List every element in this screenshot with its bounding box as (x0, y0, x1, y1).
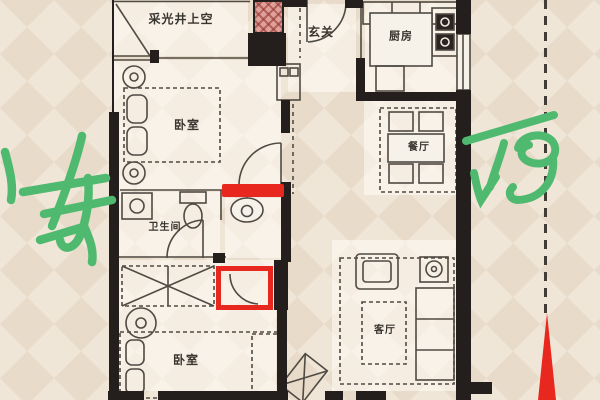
armchair-cushion (363, 261, 391, 282)
dining-chair (419, 164, 443, 183)
room-label-dining: 餐厅 (408, 143, 430, 153)
sofa (416, 288, 454, 380)
floor-plan-image: 采光井上空 玄关 厨房 卧室 餐厅 卫生间 卧室 客厅 (0, 0, 600, 400)
bed (124, 88, 220, 162)
red-pointer-spike (538, 313, 556, 400)
round-table (126, 308, 156, 338)
round-table (136, 318, 146, 328)
entry-closet-shelf (280, 68, 288, 76)
duct-shaft (253, 0, 284, 34)
wall-segment (284, 0, 307, 7)
pillow (127, 95, 147, 123)
room-label-bedroom-bottom: 卧室 (173, 354, 199, 366)
wall-segment (277, 308, 287, 392)
wall-segment (274, 260, 288, 310)
lamp (432, 267, 437, 272)
toilet-tank (180, 192, 206, 203)
wall-segment (108, 391, 144, 400)
east-annotation-stroke (84, 226, 93, 262)
bedside-plant (130, 73, 138, 81)
dining-chair (389, 164, 413, 183)
east-annotation-stroke (40, 228, 80, 240)
wall-segment (281, 100, 290, 133)
wall-segment (158, 391, 288, 400)
wall-segment (356, 391, 386, 400)
wall-segment (248, 33, 286, 66)
dining-chair (389, 112, 413, 131)
west-annotation (458, 103, 586, 215)
east-annotation (0, 126, 128, 284)
shower-drain (130, 199, 144, 213)
stove-burner (436, 14, 454, 30)
dining-chair (419, 112, 443, 131)
door-arc-bedroom-top (239, 143, 281, 185)
bedside-plant (123, 66, 145, 88)
kitchen-cabinet (376, 66, 404, 91)
wall-segment (112, 0, 114, 112)
room-label-entry: 玄关 (308, 26, 334, 38)
desk (252, 334, 279, 394)
east-annotation-stroke (5, 152, 12, 200)
red-highlight-bar (222, 184, 284, 197)
room-label-kitchen: 厨房 (389, 31, 413, 42)
wall-segment (468, 382, 492, 394)
stove-burner (436, 34, 454, 50)
pillow (126, 340, 144, 365)
red-pointer-spike (532, 312, 562, 400)
wall-segment (325, 391, 343, 400)
east-annotation-stroke (44, 200, 112, 214)
wall-segment (356, 92, 460, 101)
wall-segment (345, 0, 363, 8)
room-label-bathroom: 卫生间 (149, 223, 182, 233)
pillow (127, 127, 147, 155)
lamp (426, 261, 442, 277)
wall-segment (150, 50, 159, 63)
wall-segment (356, 58, 365, 94)
wall-segment (213, 253, 225, 263)
light-well-diagonal (116, 4, 150, 56)
red-highlight-box (216, 266, 273, 310)
bedside-plant (130, 169, 138, 177)
wall-segment (456, 0, 471, 34)
room-label-light-well: 采光井上空 (148, 13, 213, 25)
room-label-living: 客厅 (374, 326, 396, 336)
room-label-bedroom-top: 卧室 (174, 119, 200, 131)
entry-closet-shelf (290, 68, 298, 76)
wash-basin (231, 198, 263, 222)
